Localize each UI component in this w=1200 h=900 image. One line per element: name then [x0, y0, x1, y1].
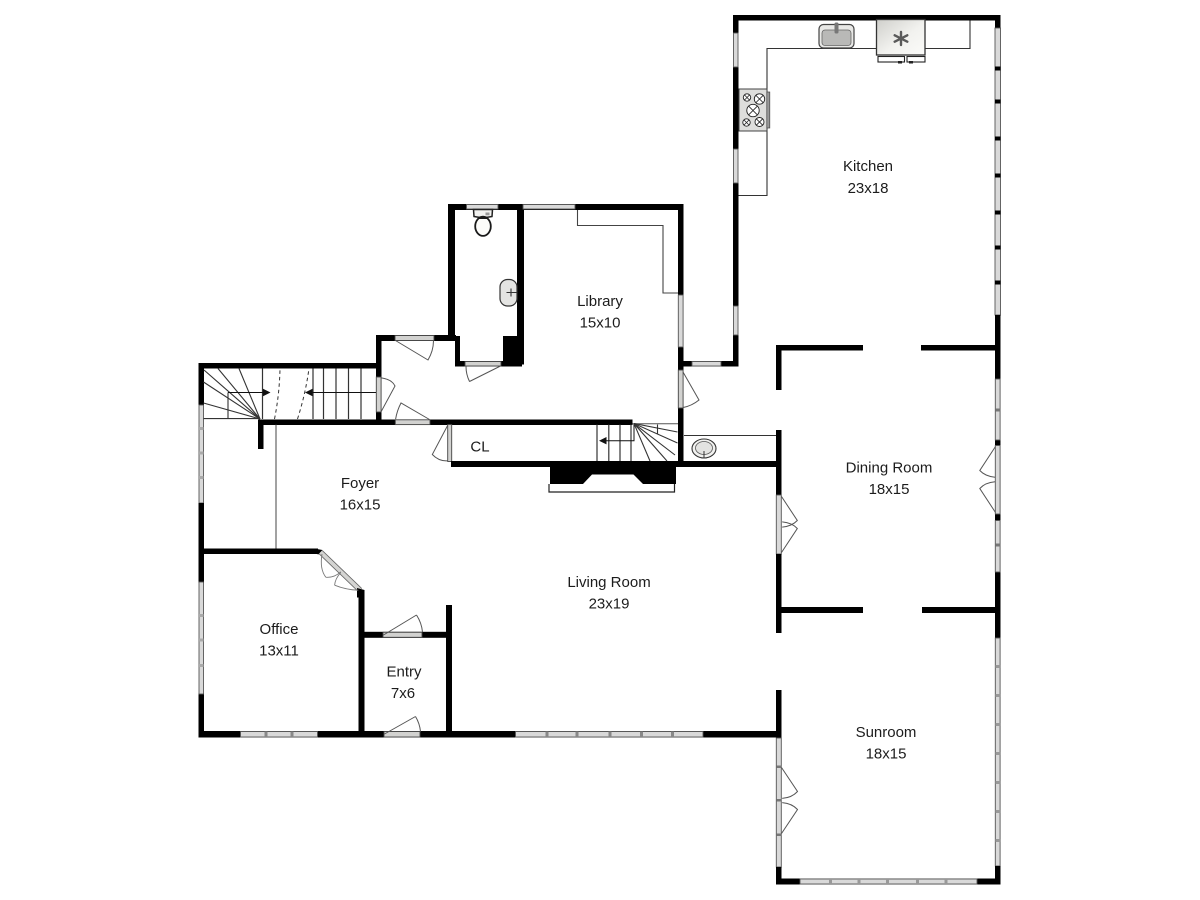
svg-text:23x19: 23x19 [589, 596, 630, 613]
svg-text:18x15: 18x15 [869, 481, 910, 498]
svg-text:Dining Room: Dining Room [846, 460, 933, 477]
svg-text:Office: Office [260, 621, 299, 638]
svg-text:18x15: 18x15 [866, 746, 907, 763]
svg-text:Entry: Entry [386, 664, 422, 681]
svg-text:Living Room: Living Room [567, 574, 650, 591]
svg-text:Sunroom: Sunroom [856, 724, 917, 741]
svg-text:23x18: 23x18 [848, 180, 889, 197]
svg-text:Foyer: Foyer [341, 475, 379, 492]
svg-text:16x15: 16x15 [340, 497, 381, 514]
svg-text:15x10: 15x10 [580, 315, 621, 332]
svg-text:CL: CL [470, 439, 489, 456]
svg-text:7x6: 7x6 [391, 685, 415, 702]
svg-text:Library: Library [577, 293, 623, 310]
svg-text:Kitchen: Kitchen [843, 158, 893, 175]
svg-text:13x11: 13x11 [259, 643, 299, 660]
